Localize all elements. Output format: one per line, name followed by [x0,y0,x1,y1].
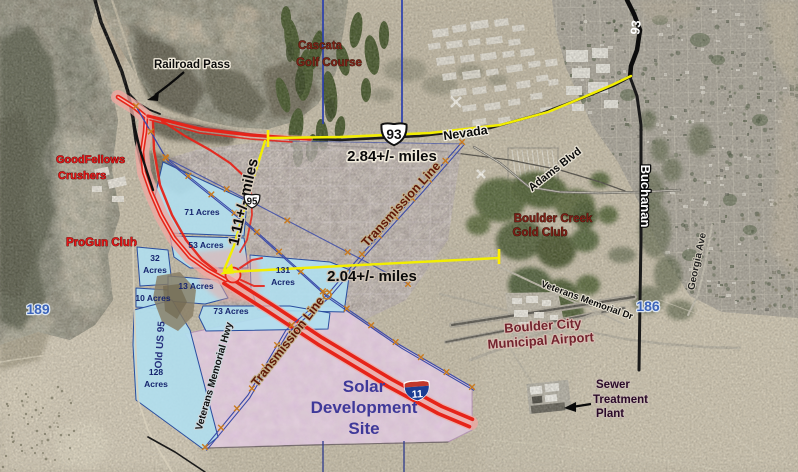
svg-text:Acres: Acres [144,379,168,389]
svg-text:2.04+/- miles: 2.04+/- miles [327,268,417,285]
svg-text:93: 93 [627,19,644,35]
svg-text:95: 95 [247,197,258,208]
svg-text:93: 93 [386,127,402,142]
svg-text:11: 11 [411,388,423,401]
svg-text:2.84+/- miles: 2.84+/- miles [347,148,437,165]
svg-text:GoodFellows: GoodFellows [56,154,125,166]
svg-text:10 Acres: 10 Acres [135,293,170,303]
svg-text:73 Acres: 73 Acres [213,306,248,316]
svg-text:Solar: Solar [343,377,386,396]
svg-text:Railroad Pass: Railroad Pass [154,59,230,71]
svg-text:Plant: Plant [596,408,624,420]
svg-text:Sewer: Sewer [596,379,630,391]
svg-text:53 Acres: 53 Acres [188,240,223,250]
svg-text:Development: Development [311,398,418,417]
svg-text:Golf Course: Golf Course [296,57,362,69]
svg-text:189: 189 [26,301,50,317]
svg-text:Buchanan: Buchanan [638,165,653,228]
svg-text:13 Acres: 13 Acres [178,281,213,291]
svg-text:186: 186 [636,298,660,314]
svg-text:Cascata: Cascata [298,40,343,52]
svg-text:Treatment: Treatment [593,394,648,406]
svg-text:ProGun Club: ProGun Club [66,237,137,249]
svg-text:Gold Club: Gold Club [513,227,568,239]
svg-text:Acres: Acres [143,265,167,275]
svg-text:Acres: Acres [271,277,295,287]
svg-text:131: 131 [276,265,290,275]
svg-text:Site: Site [348,419,379,438]
svg-text:Crushers: Crushers [58,170,106,182]
svg-text:32: 32 [150,253,160,263]
svg-text:Boulder Creek: Boulder Creek [514,213,593,225]
svg-text:71 Acres: 71 Acres [184,207,219,217]
